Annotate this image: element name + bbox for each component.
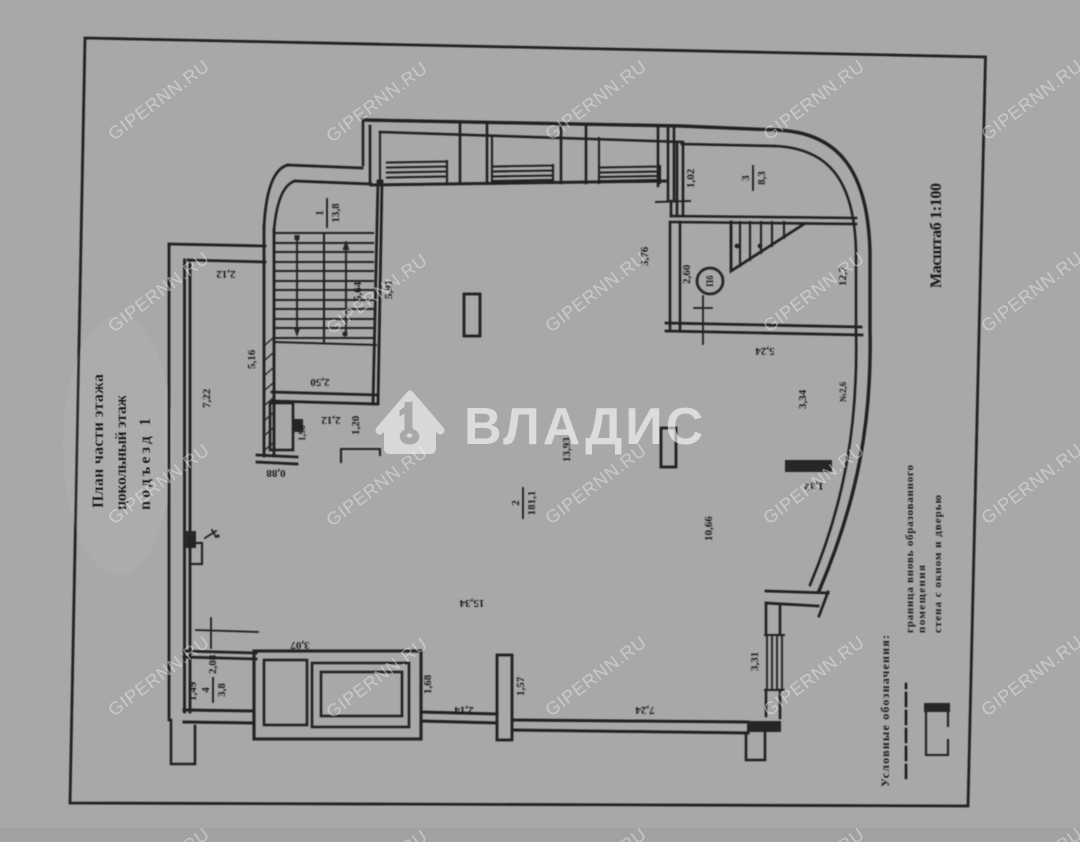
svg-text:2,14: 2,14 bbox=[454, 704, 474, 716]
svg-text:1,02: 1,02 bbox=[685, 168, 697, 188]
svg-text:1,68: 1,68 bbox=[422, 674, 434, 694]
svg-text:2,60: 2,60 bbox=[681, 264, 693, 284]
svg-text:№2,6: №2,6 bbox=[838, 381, 848, 402]
svg-text:Условные обозначения:: Условные обозначения: bbox=[878, 635, 892, 787]
svg-text:2,12: 2,12 bbox=[216, 268, 236, 280]
svg-text:13,8: 13,8 bbox=[330, 203, 342, 223]
svg-text:2,08: 2,08 bbox=[207, 654, 219, 674]
svg-text:5,16: 5,16 bbox=[246, 349, 258, 369]
svg-text:3,31: 3,31 bbox=[749, 652, 761, 671]
svg-text:4: 4 bbox=[200, 687, 212, 693]
svg-text:2,12: 2,12 bbox=[321, 414, 341, 426]
svg-text:1,98: 1,98 bbox=[297, 425, 307, 441]
svg-text:15,34: 15,34 bbox=[459, 597, 484, 609]
svg-text:3: 3 bbox=[740, 175, 752, 181]
svg-text:ВЛАДИС: ВЛАДИС bbox=[464, 398, 706, 456]
svg-text:Пб: Пб bbox=[705, 275, 715, 287]
svg-text:8,3: 8,3 bbox=[756, 171, 768, 185]
svg-text:7,24: 7,24 bbox=[635, 704, 655, 716]
svg-text:граница вновь образованного: граница вновь образованного bbox=[904, 465, 916, 634]
svg-text:1,49: 1,49 bbox=[187, 681, 199, 701]
svg-text:3,07: 3,07 bbox=[290, 639, 310, 651]
svg-text:помещения: помещения bbox=[916, 565, 928, 633]
svg-text:1,20: 1,20 bbox=[350, 415, 362, 435]
svg-text:1: 1 bbox=[314, 210, 326, 216]
svg-text:10,66: 10,66 bbox=[703, 516, 715, 541]
svg-text:5,24: 5,24 bbox=[755, 345, 775, 357]
svg-text:цокольный этаж: цокольный этаж bbox=[113, 395, 130, 510]
svg-text:0,88: 0,88 bbox=[266, 467, 286, 479]
svg-text:План части этажа: План части этажа bbox=[90, 374, 107, 508]
svg-text:2: 2 bbox=[510, 500, 522, 506]
svg-text:стена с окном и дверью: стена с окном и дверью bbox=[932, 495, 944, 633]
svg-text:1,57: 1,57 bbox=[515, 676, 527, 696]
svg-text:181,1: 181,1 bbox=[526, 491, 538, 516]
svg-text:7,22: 7,22 bbox=[201, 388, 213, 408]
svg-text:2,50: 2,50 bbox=[310, 376, 330, 388]
svg-text:3,34: 3,34 bbox=[797, 389, 809, 409]
svg-text:Масштаб 1:100: Масштаб 1:100 bbox=[928, 183, 945, 288]
svg-text:3,8: 3,8 bbox=[216, 683, 228, 697]
